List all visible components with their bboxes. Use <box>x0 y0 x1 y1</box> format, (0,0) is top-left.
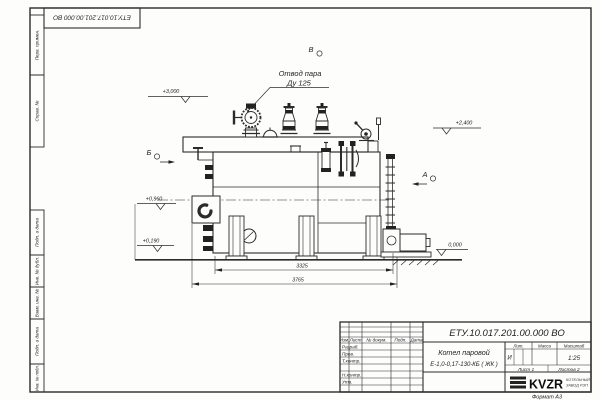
margin-boxes: Перв. примен. Справ. № Подп. и дата Инв.… <box>30 15 44 392</box>
burner-box <box>192 196 220 223</box>
view-marker-left: Б <box>147 148 175 164</box>
ground-hatch <box>393 261 438 266</box>
pump-motor <box>400 234 426 251</box>
kvzr-logo-icon <box>510 377 526 389</box>
support-leg <box>296 216 317 260</box>
kvzr-logo-sub1: КОТЕЛЬНЫЙ <box>566 378 590 382</box>
elevation-symbol-icon <box>181 97 190 103</box>
callout-leader <box>248 88 270 112</box>
boiler-drawing: Отвод пара Ду 125 В Б А +3,000 <box>135 45 481 288</box>
product-name: Котел паровой <box>438 348 490 357</box>
corner-stamp-doc-number: ЕТУ.10.017.201.00.000 ВО <box>53 13 131 20</box>
elevation-symbol-icon <box>153 246 162 252</box>
margin-box-label: Подп. и дата <box>35 327 40 356</box>
header-cell: Лист <box>349 338 362 343</box>
elevation-value: 0,000 <box>448 243 462 249</box>
format-label: Формат А3 <box>532 395 563 400</box>
elevation-value: +0,960 <box>146 197 163 203</box>
elevation-symbol-icon <box>437 250 446 256</box>
elevation-value: +3,000 <box>163 89 180 95</box>
col-scale: Масштаб <box>564 344 585 349</box>
margin-box-label: Инв. № дубл. <box>35 257 40 285</box>
approval-row-label: Разраб. <box>342 345 359 350</box>
rotated-symbol-icon <box>430 176 435 181</box>
sheets-total: Листов 2 <box>557 367 580 373</box>
feed-pump <box>381 226 431 257</box>
kvzr-logo: KVZR КОТЕЛЬНЫЙ ЗАВОД РЭП <box>510 377 590 392</box>
col-lit: Лит. <box>512 344 523 349</box>
approval-grid <box>340 322 423 392</box>
view-marker-label: В <box>308 45 313 54</box>
gauge-handle <box>356 150 359 167</box>
drawing-sheet: ЕТУ.10.017.201.00.000 ВО Перв. примен. С… <box>0 0 600 400</box>
header-cell: № докум. <box>366 338 386 343</box>
margin-box-label: Инв. № подл. <box>35 365 40 391</box>
elevation-mark-3000: +3,000 <box>148 89 208 103</box>
callout-text-line2: Ду 125 <box>286 79 312 88</box>
margin-box-label: Перв. примен. <box>35 30 40 61</box>
elevation-symbol-icon <box>156 204 165 210</box>
elevation-value: +0,190 <box>143 239 160 245</box>
dimension-value: 3325 <box>296 264 308 270</box>
header-cell: Дата <box>409 338 423 343</box>
rotated-symbol-icon <box>154 154 159 159</box>
dimension-value: 3765 <box>292 278 304 284</box>
view-marker-label: Б <box>147 148 152 157</box>
kvzr-logo-text: KVZR <box>529 378 563 392</box>
margin-box-label: Взам. инв. № <box>35 289 40 317</box>
title-doc-number: ЕТУ.10.017.201.00.000 ВО <box>449 328 565 339</box>
safety-valve <box>281 103 298 134</box>
sheet-number: Лист 1 <box>517 367 535 373</box>
elevation-value: +2,400 <box>456 121 473 127</box>
approval-row-label: Утв. <box>342 380 352 385</box>
header-cell: Подп. <box>394 338 406 343</box>
approval-labels: Изм. Лист № докум. Подп. Дата Разраб. Пр… <box>340 338 423 385</box>
approval-row-label: Пров. <box>342 352 354 357</box>
view-arrow-icon <box>412 182 419 185</box>
safety-valve <box>314 103 331 134</box>
callout-text-line1: Отвод пара <box>279 69 322 78</box>
vent-pin <box>377 118 381 140</box>
product-code: Е-1,0-0,17-130-КБ ( ЖК ) <box>430 362 498 368</box>
approval-row-label: Т.контр. <box>342 359 361 364</box>
elevation-mark-0190: +0,190 <box>137 239 174 252</box>
lit-value: И <box>507 356 512 362</box>
view-marker-top: В <box>308 45 322 56</box>
col-mass: Масса <box>538 344 552 349</box>
rotated-symbol-icon <box>317 51 322 56</box>
drum-end-fitting <box>368 141 378 152</box>
kvzr-logo-sub2: ЗАВОД РЭП <box>566 384 588 388</box>
margin-box-label: Справ. № <box>35 101 40 122</box>
view-marker-label: А <box>421 170 427 179</box>
header-cell: Изм. <box>340 338 350 343</box>
steam-outlet-valve <box>234 104 261 138</box>
view-marker-right: А <box>412 170 436 186</box>
pressure-gauge-dome <box>262 128 278 138</box>
elevation-mark-0960: +0,960 <box>137 197 176 210</box>
scale-value: 1:25 <box>568 355 581 362</box>
elevation-mark-0000: 0,000 <box>436 243 468 256</box>
view-arrow-icon <box>169 160 176 163</box>
support-leg <box>226 216 247 260</box>
elevation-symbol-icon <box>442 128 451 134</box>
pump-base <box>381 252 431 257</box>
flanged-pipe <box>386 154 396 230</box>
title-block: Изм. Лист № докум. Подп. Дата Разраб. Пр… <box>340 322 591 392</box>
margin-box-label: Подп. и дата <box>35 218 40 247</box>
elevation-mark-2400: +2,400 <box>433 121 481 135</box>
approval-row-label: Н.контр. <box>342 373 361 378</box>
